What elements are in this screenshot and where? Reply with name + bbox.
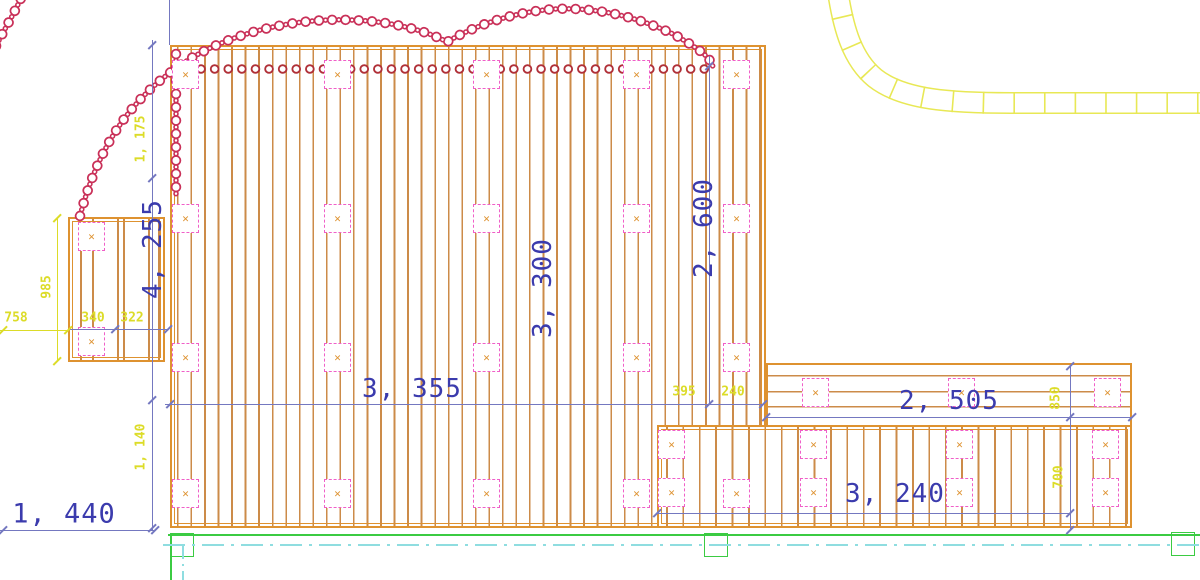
post-marker[interactable]: ✕ [324, 60, 351, 89]
post-marker[interactable]: ✕ [946, 430, 973, 459]
stone-path-band[interactable] [837, 0, 1200, 103]
dim-ext-top-width[interactable]: 2, 505 [899, 386, 999, 416]
post-marker[interactable]: ✕ [172, 343, 199, 372]
dim-ext-bottom-width[interactable]: 3, 240 [845, 479, 945, 509]
dim-module-offset[interactable]: 758 [4, 311, 27, 326]
dim-ext-line-top-left [169, 0, 170, 45]
post-marker[interactable]: ✕ [723, 343, 750, 372]
post-marker[interactable]: ✕ [623, 204, 650, 233]
post-marker[interactable]: ✕ [800, 430, 827, 459]
cross-marker-icon: ✕ [334, 213, 341, 224]
post-marker[interactable]: ✕ [1092, 478, 1119, 507]
cross-marker-icon: ✕ [334, 69, 341, 80]
dim-module-bay-1[interactable]: 340 [81, 311, 104, 326]
cross-marker-icon: ✕ [633, 352, 640, 363]
cross-marker-icon: ✕ [1104, 387, 1111, 398]
dim-deck-height-inner[interactable]: 3, 300 [528, 238, 558, 338]
post-marker[interactable]: ✕ [78, 222, 105, 251]
post-marker[interactable]: ✕ [623, 60, 650, 89]
cross-marker-icon: ✕ [1102, 487, 1109, 498]
cross-marker-icon: ✕ [668, 439, 675, 450]
dim-line-module-height [57, 218, 58, 361]
post-marker[interactable]: ✕ [623, 343, 650, 372]
dim-ext-top-height[interactable]: 850 [1049, 386, 1064, 409]
cross-marker-icon: ✕ [633, 213, 640, 224]
cross-marker-icon: ✕ [812, 387, 819, 398]
cross-marker-icon: ✕ [182, 488, 189, 499]
dim-line-deck-width [165, 404, 763, 405]
cross-marker-icon: ✕ [733, 352, 740, 363]
cross-marker-icon: ✕ [182, 69, 189, 80]
cad-drawing-canvas: ✕✕✕✕✕✕✕✕✕✕✕✕✕✕✕✕✕✕✕✕✕✕✕✕✕✕✕✕✕✕✕✕✕ 4, 255… [0, 0, 1200, 580]
cross-marker-icon: ✕ [956, 487, 963, 498]
dim-ext-bottom-height[interactable]: 700 [1052, 465, 1067, 488]
cross-marker-icon: ✕ [483, 213, 490, 224]
dim-line-module-bays [68, 329, 168, 330]
dim-right-col-height[interactable]: 2, 600 [689, 178, 719, 278]
dim-line-ext-top [766, 417, 1132, 418]
post-marker[interactable]: ✕ [324, 479, 351, 508]
cross-marker-icon: ✕ [733, 69, 740, 80]
post-marker[interactable]: ✕ [723, 204, 750, 233]
post-marker[interactable]: ✕ [324, 204, 351, 233]
post-marker[interactable]: ✕ [172, 204, 199, 233]
dim-line-left-offset [0, 530, 156, 531]
dim-module-bay-2[interactable]: 322 [120, 311, 143, 326]
cross-marker-icon: ✕ [483, 352, 490, 363]
dim-module-height[interactable]: 985 [40, 275, 55, 298]
ground-baseline [168, 534, 1200, 536]
dim-bottom-inset[interactable]: 1, 140 [134, 424, 149, 471]
post-marker[interactable]: ✕ [473, 479, 500, 508]
post-marker[interactable]: ✕ [658, 430, 685, 459]
cross-marker-icon: ✕ [733, 488, 740, 499]
cross-marker-icon: ✕ [334, 488, 341, 499]
post-marker[interactable]: ✕ [1094, 378, 1121, 407]
centerline-horizontal [163, 544, 1200, 546]
cross-marker-icon: ✕ [668, 487, 675, 498]
post-marker[interactable]: ✕ [78, 327, 105, 356]
post-marker[interactable]: ✕ [658, 478, 685, 507]
cross-marker-icon: ✕ [633, 69, 640, 80]
cross-marker-icon: ✕ [733, 213, 740, 224]
cross-marker-icon: ✕ [483, 69, 490, 80]
post-marker[interactable]: ✕ [172, 479, 199, 508]
post-marker[interactable]: ✕ [172, 60, 199, 89]
cross-marker-icon: ✕ [182, 352, 189, 363]
dim-line-module-offset [0, 330, 68, 331]
post-marker[interactable]: ✕ [473, 60, 500, 89]
dim-line-ext-bottom [657, 513, 1070, 514]
post-marker[interactable]: ✕ [473, 343, 500, 372]
post-marker[interactable]: ✕ [1092, 430, 1119, 459]
dim-line-ext-right [1070, 366, 1071, 531]
dim-step-bay-2[interactable]: 240 [721, 385, 744, 400]
post-marker[interactable]: ✕ [723, 479, 750, 508]
post-marker[interactable]: ✕ [623, 479, 650, 508]
cross-marker-icon: ✕ [88, 336, 95, 347]
dim-deck-width[interactable]: 3, 355 [362, 374, 462, 404]
dim-total-height[interactable]: 4, 255 [138, 199, 168, 299]
post-marker[interactable]: ✕ [946, 478, 973, 507]
cross-marker-icon: ✕ [810, 439, 817, 450]
cross-marker-icon: ✕ [483, 488, 490, 499]
cross-marker-icon: ✕ [1102, 439, 1109, 450]
dim-top-inset[interactable]: 1, 175 [134, 116, 149, 163]
post-marker[interactable]: ✕ [800, 478, 827, 507]
cross-marker-icon: ✕ [182, 213, 189, 224]
post-marker[interactable]: ✕ [802, 378, 829, 407]
cross-marker-icon: ✕ [88, 231, 95, 242]
post-marker[interactable]: ✕ [473, 204, 500, 233]
centerline-vertical [182, 545, 184, 580]
post-marker[interactable]: ✕ [723, 60, 750, 89]
cross-marker-icon: ✕ [956, 439, 963, 450]
cross-marker-icon: ✕ [810, 487, 817, 498]
cross-marker-icon: ✕ [334, 352, 341, 363]
dim-step-bay-1[interactable]: 395 [672, 385, 695, 400]
post-marker[interactable]: ✕ [324, 343, 351, 372]
dim-left-offset[interactable]: 1, 440 [12, 499, 116, 530]
cross-marker-icon: ✕ [633, 488, 640, 499]
